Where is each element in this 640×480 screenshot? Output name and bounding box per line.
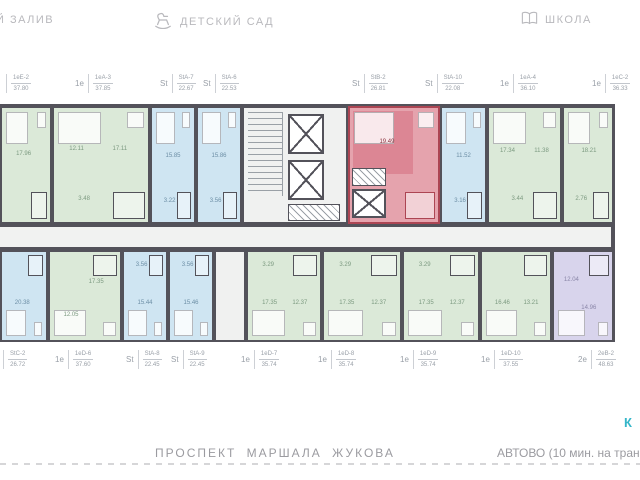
unit-area: 48.63	[598, 360, 613, 369]
unit-type: 1е	[55, 356, 64, 364]
unit-label-StА-9: StStА-922.45	[171, 350, 207, 369]
unit-code: StА-9	[188, 350, 207, 360]
wardrobe-furniture	[200, 322, 208, 336]
unit-type: St	[425, 80, 433, 88]
top-unit-labels: 1еЕ-237.801е1еА-337.85StStА-722.67StStА-…	[0, 72, 640, 102]
unit-code: StА-7	[177, 74, 196, 84]
apartment-2еВ-2[interactable]: 12.0414.96	[552, 250, 614, 342]
unit-type: 1е	[500, 80, 509, 88]
rocking-horse-icon	[152, 11, 174, 32]
wardrobe-furniture	[534, 322, 546, 336]
bathroom	[149, 255, 163, 276]
landmark-kindergarten-label: ДЕТСКИЙ САД	[180, 16, 274, 28]
room-area-value: 12.37	[450, 300, 465, 306]
unit-code: 1еD-6	[73, 350, 93, 360]
unit-label-divider	[3, 350, 4, 369]
unit-label-divider	[437, 74, 438, 93]
corridor	[0, 224, 614, 250]
unit-code-area: StС-226.72	[8, 350, 27, 369]
apartment-StС-2[interactable]: 20.38	[0, 250, 48, 342]
apartment-1еD-7[interactable]: 17.3512.373.29	[246, 250, 322, 342]
unit-label-StА-7: StStА-722.67	[160, 74, 196, 93]
unit-code-area: 1еА-436.10	[518, 74, 538, 93]
bed-furniture	[486, 310, 517, 336]
bed-furniture	[174, 310, 193, 336]
unit-label-StС-2: StС-226.72	[3, 350, 27, 369]
room-area-value: 17.34	[500, 148, 515, 154]
wardrobe-furniture	[382, 322, 396, 336]
room-area-value: 3.44	[512, 196, 524, 202]
wardrobe-furniture	[228, 112, 236, 128]
unit-area: 35.74	[421, 360, 436, 369]
unit-type: 1е	[481, 356, 490, 364]
unit-label-divider	[254, 350, 255, 369]
unit-code: StС-2	[8, 350, 27, 360]
room-area-value: 19.49	[379, 139, 394, 145]
bathroom	[450, 255, 475, 276]
unit-code: 1еС-2	[610, 74, 630, 84]
street-name: ПРОСПЕКТ МАРШАЛА ЖУКОВА	[155, 446, 395, 460]
unit-area: 22.45	[145, 360, 160, 369]
bed-furniture	[202, 112, 221, 144]
unit-label-divider	[364, 74, 365, 93]
unit-area: 22.45	[190, 360, 205, 369]
unit-code-area: 1еD-735.74	[259, 350, 279, 369]
unit-code-area: 1еD-637.60	[73, 350, 93, 369]
bed-furniture	[493, 112, 526, 144]
bed-furniture	[408, 310, 442, 336]
room-area-value: 15.86	[211, 153, 226, 159]
wardrobe-furniture	[598, 322, 608, 336]
unit-area: 36.10	[520, 84, 535, 93]
unit-label-1еD-6: 1е1еD-637.60	[55, 350, 93, 369]
unit-type: 1е	[400, 356, 409, 364]
room-area-value: 17.11	[113, 146, 128, 152]
entrance-lobby	[214, 250, 246, 342]
apartment-1еD-8[interactable]: 17.3512.373.29	[322, 250, 402, 342]
unit-type: 1е	[241, 356, 250, 364]
bathroom	[31, 192, 47, 219]
bathroom	[589, 255, 609, 276]
unit-code: 1еD-7	[259, 350, 279, 360]
unit-code: StВ-2	[369, 74, 388, 84]
room-area-value: 3.29	[339, 262, 351, 268]
room-area-value: 3.16	[454, 198, 466, 204]
unit-label-divider	[172, 74, 173, 93]
elevator-shaft-1	[288, 114, 324, 154]
wardrobe-furniture	[599, 112, 608, 128]
bathroom	[371, 255, 397, 276]
unit-code-area: 1еС-236.33	[610, 74, 630, 93]
room-area-value: 17.35	[89, 279, 104, 285]
unit-code: 1еА-3	[93, 74, 113, 84]
wardrobe-furniture	[473, 112, 481, 128]
unit-area: 35.74	[339, 360, 354, 369]
room-area-value: 13.21	[523, 300, 538, 306]
unit-area: 22.08	[445, 84, 460, 93]
apartment-StА-6[interactable]: 15.863.56	[196, 106, 242, 224]
floor-plan-page: Й ЗАЛИВ ДЕТСКИЙ САД ШКОЛА 1еЕ-237.801е1е…	[0, 0, 640, 480]
bed-furniture	[252, 310, 285, 336]
unit-code: 1еD-9	[418, 350, 438, 360]
landmark-school-label: ШКОЛА	[545, 14, 592, 26]
bathroom	[113, 192, 145, 219]
room-area-value: 3.29	[262, 262, 274, 268]
unit-type: 1е	[318, 356, 327, 364]
room-area-value: 2.76	[575, 196, 587, 202]
room-area-value: 15.85	[165, 153, 180, 159]
bathroom	[195, 255, 209, 276]
apartment-StА-10[interactable]: 11.523.16	[440, 106, 487, 224]
room-area-value: 20.38	[15, 300, 30, 306]
bed-furniture	[6, 112, 28, 144]
unit-label-1еD-7: 1е1еD-735.74	[241, 350, 279, 369]
apartment-StА-7[interactable]: 15.853.22	[150, 106, 196, 224]
room-area-value: 17.96	[16, 151, 31, 157]
wardrobe-furniture	[34, 322, 42, 336]
apartment-1еD-10[interactable]: 16.4613.21	[480, 250, 552, 342]
room-area-value: 17.35	[262, 300, 277, 306]
unit-label-divider	[413, 350, 414, 369]
unit-code: StА-10	[442, 74, 464, 84]
room-area-value: 3.22	[164, 198, 176, 204]
room-area-value: 3.29	[419, 262, 431, 268]
unit-code-area: StА-922.45	[188, 350, 207, 369]
unit-label-StА-10: StStА-1022.08	[425, 74, 464, 93]
apartment-1еА-3[interactable]: 12.1117.113.48	[52, 106, 150, 224]
unit-area: 37.55	[503, 360, 518, 369]
unit-label-1еА-3: 1е1еА-337.85	[75, 74, 113, 93]
unit-label-divider	[88, 74, 89, 93]
unit-label-divider	[183, 350, 184, 369]
bottom-unit-labels: StС-226.721е1еD-637.60StStА-822.45StStА-…	[0, 348, 640, 378]
landmark-bay-label: Й ЗАЛИВ	[0, 14, 54, 26]
bathroom	[177, 192, 191, 219]
unit-label-StА-6: StStА-622.53	[203, 74, 239, 93]
room-area-value: 11.38	[534, 148, 549, 154]
unit-code-area: StА-722.67	[177, 74, 196, 93]
unit-area: 26.81	[371, 84, 386, 93]
unit-label-divider	[138, 350, 139, 369]
wardrobe-furniture	[127, 112, 144, 128]
elevator-shaft-2	[288, 160, 324, 200]
room-area-value: 12.37	[292, 300, 307, 306]
unit-type: 1е	[75, 80, 84, 88]
vent-shaft	[288, 204, 340, 221]
unit-area: 22.67	[179, 84, 194, 93]
apartment-StА-9[interactable]: 15.463.56	[168, 250, 214, 342]
bathroom	[405, 192, 435, 219]
open-book-icon	[520, 11, 539, 29]
unit-code-area: 1еА-337.85	[93, 74, 113, 93]
bed-furniture	[568, 112, 590, 144]
unit-label-divider	[494, 350, 495, 369]
landmark-bay: Й ЗАЛИВ	[0, 14, 54, 26]
unit-label-1еА-4: 1е1еА-436.10	[500, 74, 538, 93]
unit-label-divider	[331, 350, 332, 369]
room-area-value: 3.56	[210, 198, 222, 204]
unit-type: 2е	[578, 356, 587, 364]
unit-area: 37.60	[76, 360, 91, 369]
unit-label-1еD-9: 1е1еD-935.74	[400, 350, 438, 369]
room-area-value: 3.48	[78, 196, 90, 202]
wardrobe-furniture	[543, 112, 556, 128]
apartment-1еЕ-2[interactable]: 17.96	[0, 106, 52, 224]
bed-furniture	[328, 310, 363, 336]
wardrobe-furniture	[103, 322, 116, 336]
wardrobe-furniture	[182, 112, 190, 128]
unit-type: 1е	[592, 80, 601, 88]
landmark-school: ШКОЛА	[520, 11, 592, 29]
room-area-value: 12.37	[371, 300, 386, 306]
bed-furniture	[446, 112, 466, 144]
apartment-StА-8[interactable]: 15.443.56	[122, 250, 168, 342]
unit-code: 1еА-4	[518, 74, 538, 84]
unit-type: St	[126, 356, 134, 364]
apartment-1еА-4[interactable]: 17.3411.383.44	[487, 106, 562, 224]
wardrobe-furniture	[418, 112, 434, 128]
unit-area: 37.85	[95, 84, 110, 93]
unit-label-2еВ-2: 2е2еВ-248.63	[578, 350, 616, 369]
landmark-kindergarten: ДЕТСКИЙ САД	[152, 11, 274, 32]
bathroom	[467, 192, 482, 219]
bed-furniture	[558, 310, 585, 336]
unit-code: 1еЕ-2	[11, 74, 31, 84]
bed-furniture	[6, 310, 26, 336]
unit-label-divider	[68, 350, 69, 369]
unit-type: St	[203, 80, 211, 88]
wardrobe-furniture	[461, 322, 474, 336]
unit-code-area: 1еD-835.74	[336, 350, 356, 369]
room-area-value: 18.21	[581, 148, 596, 154]
metro-name: АВТОВО (10 мин. на трансп	[497, 446, 640, 460]
apartment-1еD-6[interactable]: 17.3512.05	[48, 250, 122, 342]
unit-area: 26.72	[10, 360, 25, 369]
room-area-value: 14.96	[581, 305, 596, 311]
elevator-shaft-3	[352, 189, 386, 218]
bed-furniture	[58, 112, 101, 144]
wardrobe-furniture	[154, 322, 162, 336]
building-core	[242, 106, 348, 224]
bathroom	[533, 192, 557, 219]
room-area-value: 11.52	[456, 153, 471, 159]
unit-code: StА-6	[220, 74, 239, 84]
bathroom	[524, 255, 547, 276]
road-dashed-line	[0, 463, 640, 465]
staircase	[248, 112, 283, 196]
bathroom	[223, 192, 237, 219]
room-area-value: 16.46	[495, 300, 510, 306]
unit-code: StА-8	[143, 350, 162, 360]
bathroom	[93, 255, 117, 276]
unit-area: 37.80	[14, 84, 29, 93]
map-label-fragment: К	[624, 415, 632, 430]
unit-label-1еЕ-2: 1еЕ-237.80	[6, 74, 31, 93]
unit-area: 35.74	[262, 360, 277, 369]
unit-area: 22.53	[222, 84, 237, 93]
unit-label-1еD-10: 1е1еD-1037.55	[481, 350, 523, 369]
room-area-value: 3.56	[136, 262, 148, 268]
unit-label-1еD-8: 1е1еD-835.74	[318, 350, 356, 369]
vent-shaft-2	[352, 168, 386, 186]
unit-label-1еС-2: 1е1еС-236.33	[592, 74, 630, 93]
unit-label-divider	[215, 74, 216, 93]
unit-area: 36.33	[613, 84, 628, 93]
unit-code: 2еВ-2	[596, 350, 616, 360]
room-area-value: 15.46	[183, 300, 198, 306]
unit-code-area: StА-1022.08	[442, 74, 464, 93]
bathroom	[293, 255, 317, 276]
wardrobe-furniture	[303, 322, 316, 336]
unit-label-divider	[605, 74, 606, 93]
unit-label-divider	[591, 350, 592, 369]
unit-code-area: 1еЕ-237.80	[11, 74, 31, 93]
room-area-value: 17.35	[419, 300, 434, 306]
unit-code: 1еD-10	[499, 350, 523, 360]
unit-code-area: StВ-226.81	[369, 74, 388, 93]
unit-code-area: StА-822.45	[143, 350, 162, 369]
unit-code-area: 1еD-1037.55	[499, 350, 523, 369]
bathroom	[593, 192, 609, 219]
wardrobe-furniture	[37, 112, 46, 128]
bathroom	[28, 255, 43, 276]
unit-label-StА-8: StStА-822.45	[126, 350, 162, 369]
unit-type: St	[352, 80, 360, 88]
room-area-value: 17.35	[339, 300, 354, 306]
bed-furniture	[128, 310, 147, 336]
unit-code-area: StА-622.53	[220, 74, 239, 93]
room-area-value: 12.05	[63, 312, 78, 318]
unit-label-divider	[6, 74, 7, 93]
unit-code-area: 1еD-935.74	[418, 350, 438, 369]
floor-plan: 17.9612.1117.113.4815.853.2215.863.5619.…	[0, 104, 640, 348]
unit-type: St	[160, 80, 168, 88]
unit-code: 1еD-8	[336, 350, 356, 360]
room-area-value: 3.56	[182, 262, 194, 268]
unit-label-StВ-2: StStВ-226.81	[352, 74, 388, 93]
unit-code-area: 2еВ-248.63	[596, 350, 616, 369]
apartment-1еС-2[interactable]: 18.212.76	[562, 106, 614, 224]
bed-furniture	[156, 112, 175, 144]
room-area-value: 12.04	[564, 277, 579, 283]
unit-label-divider	[513, 74, 514, 93]
room-area-value: 12.11	[69, 146, 84, 152]
room-area-value: 15.44	[137, 300, 152, 306]
unit-type: St	[171, 356, 179, 364]
apartment-1еD-9[interactable]: 17.3512.373.29	[402, 250, 480, 342]
